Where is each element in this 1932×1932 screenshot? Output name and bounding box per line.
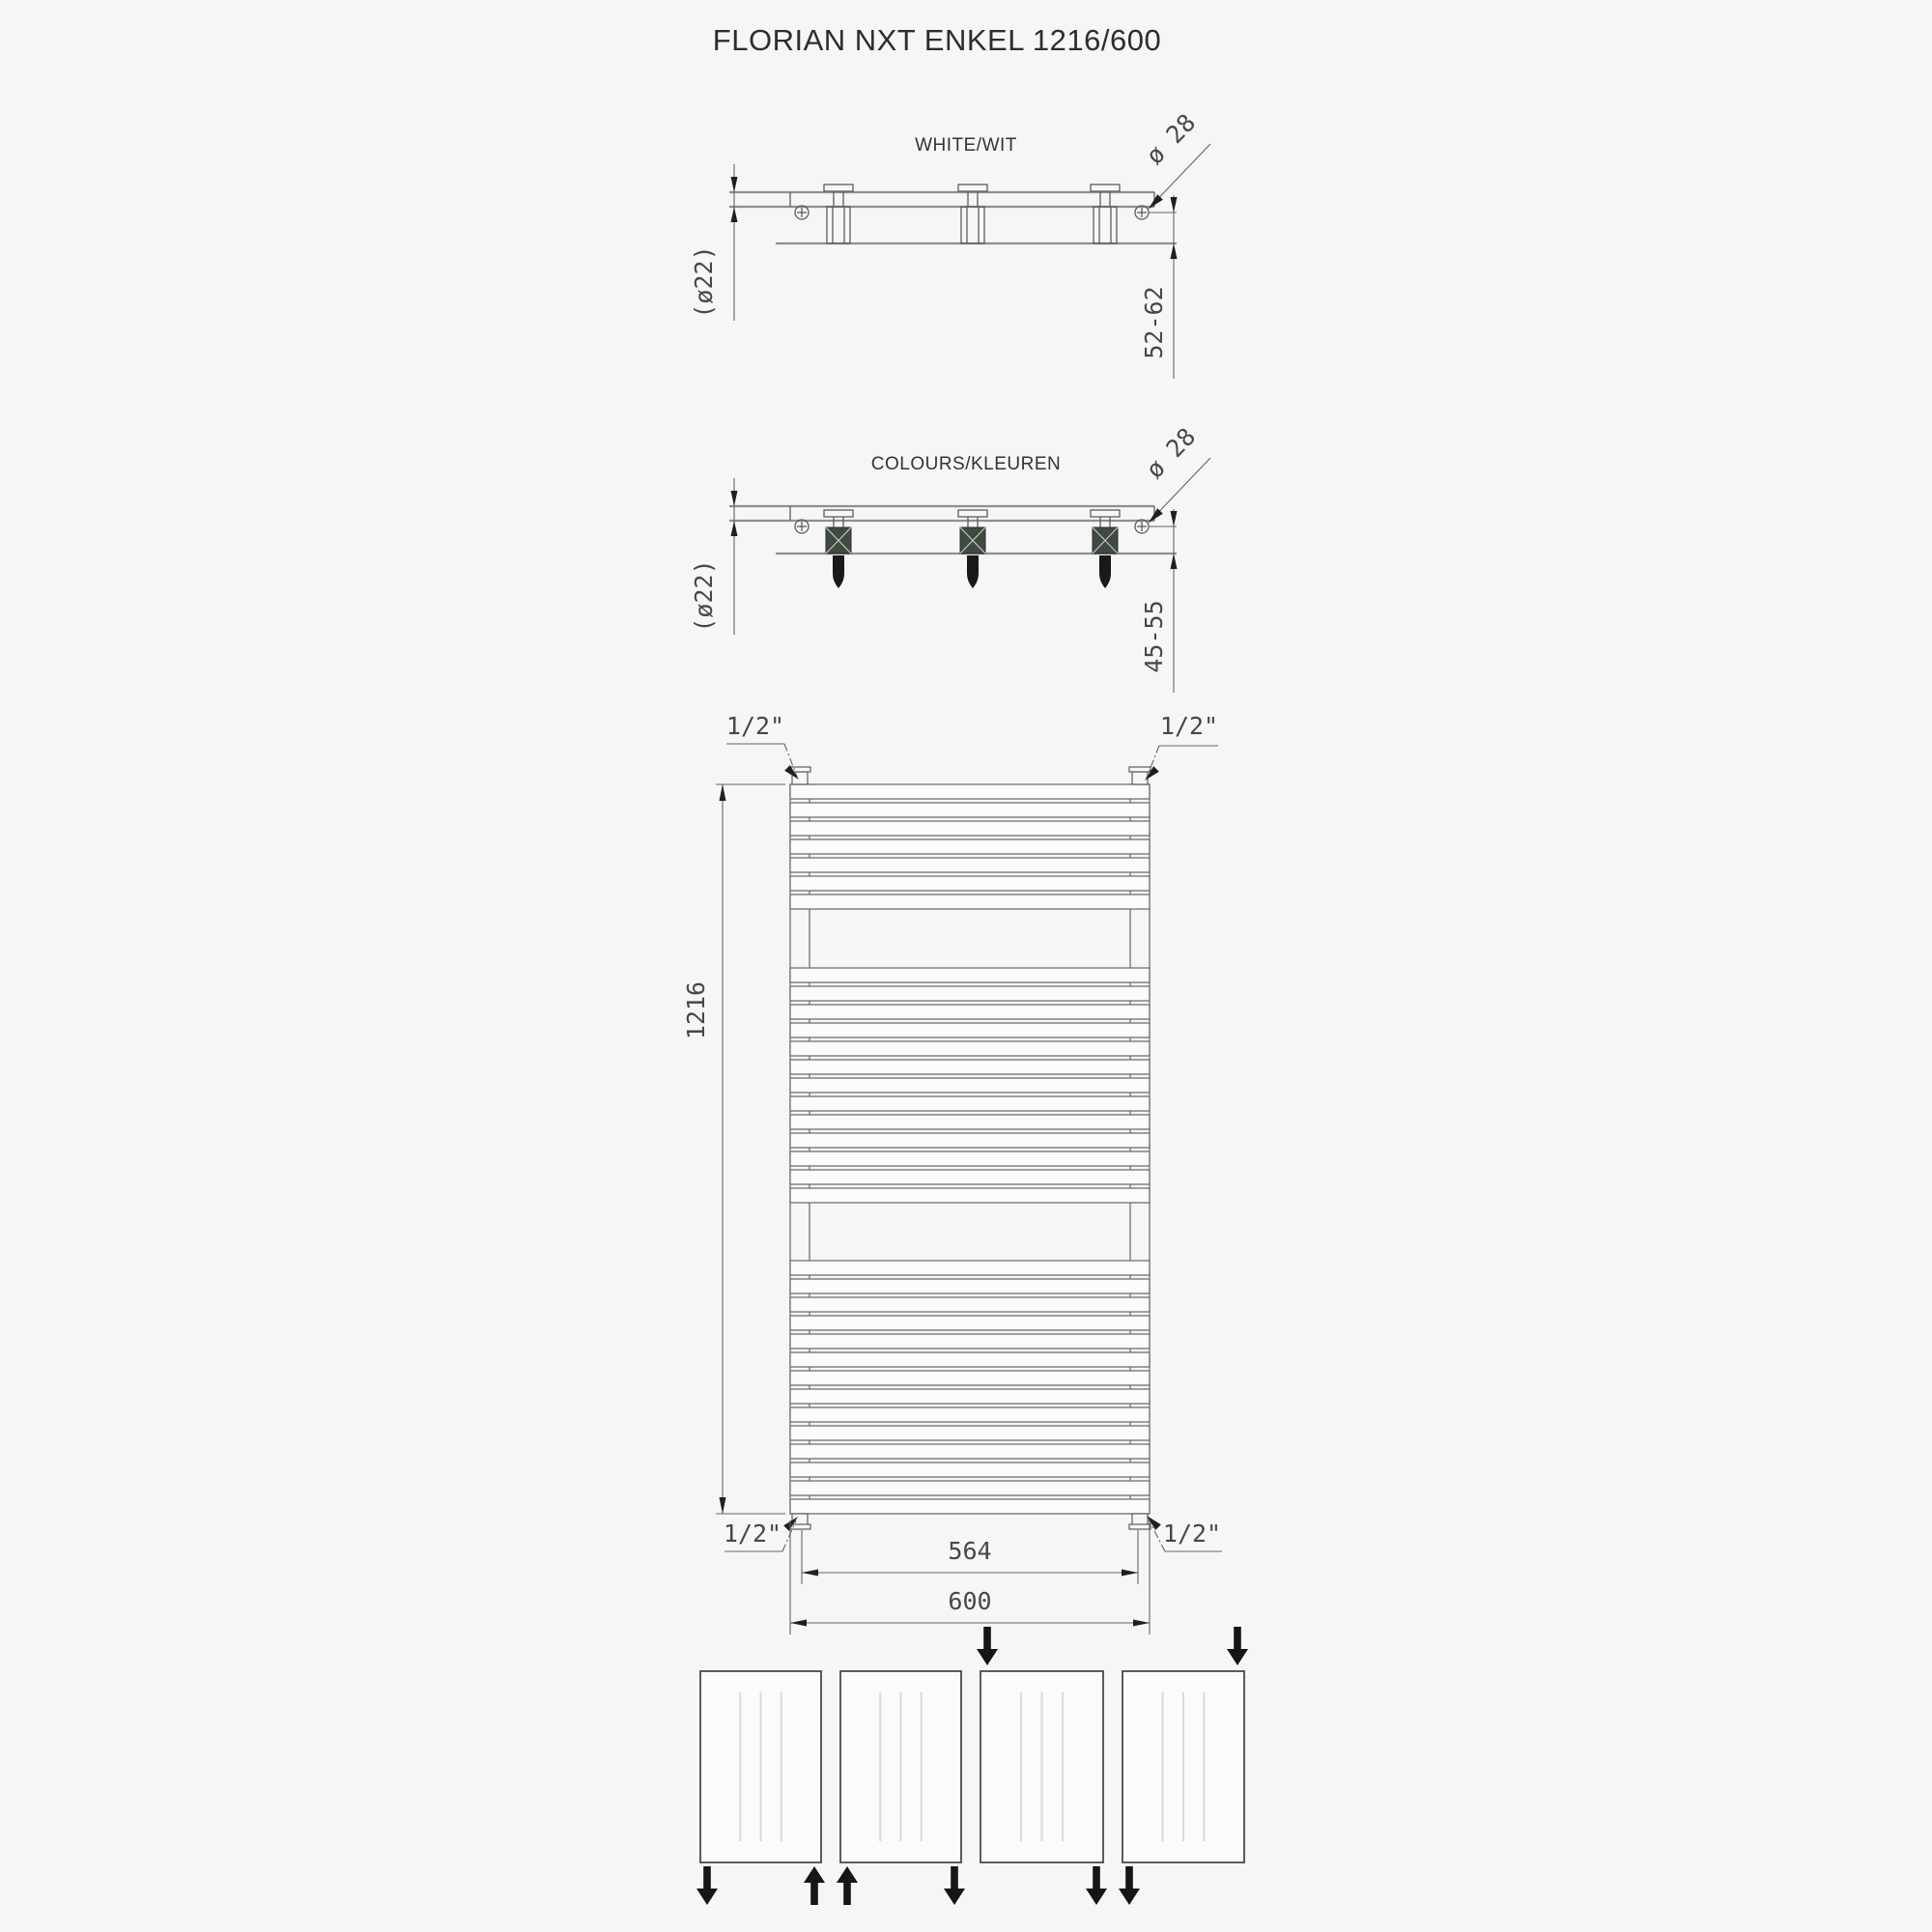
- top-right-connection-callout: 1/2": [1142, 712, 1218, 783]
- tube-row: [790, 1371, 1150, 1385]
- tube-row: [790, 1444, 1150, 1459]
- flow-arrow-bottom-left-down: [1119, 1866, 1140, 1905]
- white-wall-distance-dim: 52-62: [1140, 195, 1178, 379]
- tube-row: [790, 1078, 1150, 1093]
- tube-row: [790, 1188, 1150, 1203]
- pitch-dim-label: 564: [948, 1537, 991, 1565]
- height-dim-label: 1216: [682, 981, 710, 1039]
- flow-arrow-bottom-right-up: [804, 1866, 825, 1905]
- colours-bracket-dia-callout: ø 28: [1141, 422, 1210, 525]
- tube-row: [790, 1041, 1150, 1056]
- tube-row: [790, 1463, 1150, 1477]
- right-collector: [1130, 784, 1150, 1514]
- colours-bracket-dia-label: ø 28: [1141, 422, 1202, 483]
- top-left-connection-label: 1/2": [726, 712, 784, 740]
- connection-panel: [1119, 1627, 1248, 1905]
- white-bracket-dia-label: ø 28: [1141, 108, 1202, 169]
- tube-row: [790, 1407, 1150, 1422]
- colours-view: COLOURS/KLEUREN: [690, 422, 1210, 693]
- technical-drawing-page: FLORIAN NXT ENKEL 1216/600 WHITE/WIT: [0, 0, 1932, 1932]
- colours-view-label: COLOURS/KLEUREN: [871, 454, 1062, 474]
- pitch-dim: 564: [802, 1530, 1138, 1584]
- front-view: 1/2" 1/2" 1/2" 1/2": [682, 712, 1222, 1634]
- flow-arrow-bottom-right-down: [1086, 1866, 1107, 1905]
- connection-diagrams: [696, 1627, 1248, 1905]
- colours-screw: [1135, 520, 1149, 533]
- tube-row: [790, 1133, 1150, 1148]
- white-screw: [1135, 206, 1149, 219]
- tube-row: [790, 1316, 1150, 1330]
- colours-wall-distance-dim: 45-55: [1140, 509, 1178, 693]
- colours-wall-bracket: [824, 510, 853, 588]
- colours-wall-bracket: [1091, 510, 1120, 588]
- white-view: WHITE/WIT: [690, 108, 1210, 379]
- wall-plug: [967, 555, 979, 588]
- tube-row: [790, 803, 1150, 817]
- tube-row: [790, 1352, 1150, 1367]
- tube-row: [790, 1151, 1150, 1166]
- bottom-right-connection: [1129, 1514, 1151, 1529]
- tube-row: [790, 1389, 1150, 1404]
- page-title: FLORIAN NXT ENKEL 1216/600: [713, 23, 1161, 57]
- flow-arrow-bottom-left-down: [696, 1866, 718, 1905]
- tube-row: [790, 986, 1150, 1001]
- tube-row: [790, 968, 1150, 982]
- tube-row: [790, 1060, 1150, 1074]
- tube-row: [790, 876, 1150, 891]
- tube-row: [790, 1170, 1150, 1184]
- bottom-right-connection-callout: 1/2": [1144, 1513, 1222, 1551]
- width-dim-label: 600: [948, 1587, 991, 1615]
- white-tube-dia-dim: (ø22): [690, 164, 738, 321]
- tube-row: [790, 1481, 1150, 1495]
- bottom-right-connection-label: 1/2": [1163, 1520, 1221, 1548]
- white-wall-bracket: [958, 185, 987, 243]
- flow-arrow-bottom-right-down: [944, 1866, 965, 1905]
- white-view-label: WHITE/WIT: [915, 135, 1017, 156]
- bottom-left-connection-label: 1/2": [724, 1520, 781, 1548]
- wall-plug: [833, 555, 844, 588]
- tube-rows: [790, 784, 1150, 1514]
- tube-row: [790, 1023, 1150, 1037]
- colours-tube-dia-dim: (ø22): [690, 478, 738, 635]
- tube-row: [790, 821, 1150, 836]
- flow-arrow-top-left-down: [977, 1627, 998, 1665]
- tube-row: [790, 1499, 1150, 1514]
- tube-row: [790, 1005, 1150, 1019]
- colours-tube-dia-label: (ø22): [690, 559, 718, 632]
- connection-panel: [837, 1671, 965, 1905]
- colours-wall-bracket: [958, 510, 987, 588]
- tube-row: [790, 839, 1150, 854]
- colours-wall-distance-label: 45-55: [1140, 600, 1168, 672]
- radiator-technical-drawing: FLORIAN NXT ENKEL 1216/600 WHITE/WIT: [0, 0, 1932, 1932]
- white-wall-distance-label: 52-62: [1140, 286, 1168, 358]
- wall-plug: [1099, 555, 1111, 588]
- tube-row: [790, 858, 1150, 872]
- tube-row: [790, 1334, 1150, 1349]
- tube-row: [790, 1426, 1150, 1440]
- flow-arrow-bottom-left-up: [837, 1866, 858, 1905]
- tube-row: [790, 1279, 1150, 1293]
- top-left-connection-callout: 1/2": [726, 712, 802, 782]
- white-screw: [795, 206, 809, 219]
- white-bracket-dia-callout: ø 28: [1141, 108, 1210, 211]
- height-dim: 1216: [682, 784, 785, 1514]
- connection-panel: [977, 1627, 1107, 1905]
- tube-row: [790, 1261, 1150, 1275]
- tube-row: [790, 784, 1150, 799]
- connection-panel: [696, 1671, 825, 1905]
- white-wall-bracket: [824, 185, 853, 243]
- white-tube-dia-label: (ø22): [690, 245, 718, 318]
- tube-row: [790, 1297, 1150, 1312]
- colours-screw: [795, 520, 809, 533]
- tube-row: [790, 1096, 1150, 1111]
- tube-row: [790, 1115, 1150, 1129]
- tube-row: [790, 895, 1150, 909]
- white-wall-bracket: [1091, 185, 1120, 243]
- top-right-connection-label: 1/2": [1160, 712, 1218, 740]
- flow-arrow-top-right-down: [1227, 1627, 1248, 1665]
- left-collector: [790, 784, 810, 1514]
- bottom-left-connection-callout: 1/2": [724, 1514, 801, 1551]
